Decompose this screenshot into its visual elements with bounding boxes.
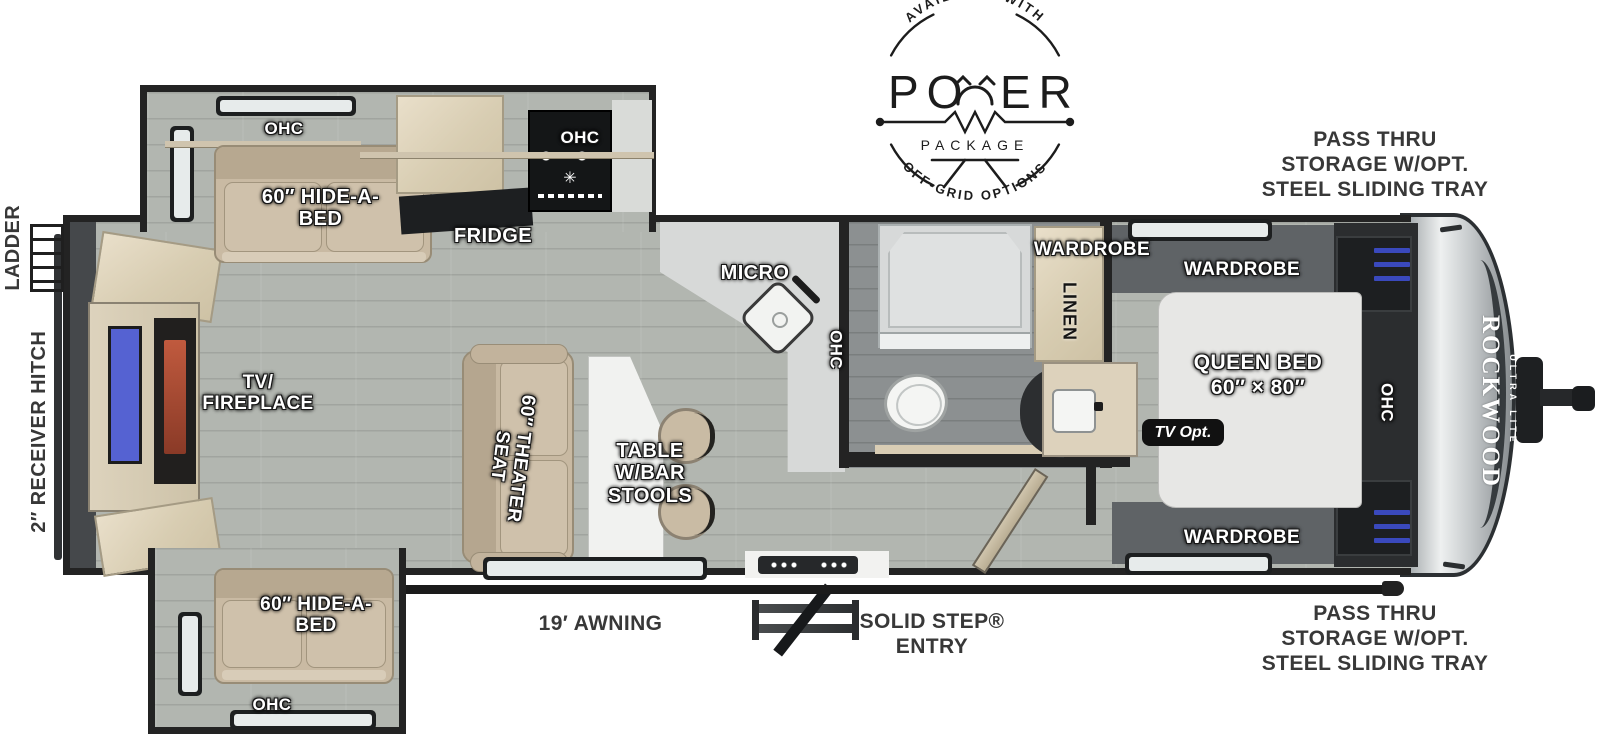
power-package-badge: AVAILABLE WITH OFF-GRID OPTIONS PO ER PA…: [860, 0, 1090, 200]
awning-cap-right: [1382, 581, 1404, 596]
label-ohc-stove: OHC: [549, 128, 611, 147]
label-ohc-bottom-slide: OHC: [240, 695, 304, 714]
badge-top-arc-label: AVAILABLE WITH: [902, 0, 1048, 25]
shower-pan: [888, 232, 1022, 328]
fireplace-glow: [164, 340, 186, 454]
badge-power-left: PO: [888, 66, 970, 118]
bedroom-wall-stub: [1086, 465, 1096, 525]
rv-floorplan-diagram: ✳ ROCKWOOD ULTRA LITE AVAILABLE WITH OFF…: [0, 0, 1600, 748]
label-tv-opt: TV Opt.: [1142, 419, 1224, 446]
label-wardrobe-bed-top: WARDROBE: [1168, 259, 1316, 280]
wardrobe-blue-stripe: [1374, 538, 1410, 543]
window-pane: [220, 100, 352, 112]
vanity-faucet: [1094, 402, 1103, 411]
label-wardrobe-bath: WARDROBE: [1019, 239, 1165, 260]
badge-bottom-arc-text: OFF-GRID OPTIONS: [900, 158, 1050, 200]
tv-screen: [108, 326, 142, 464]
label-queen-bed: QUEEN BED 60″ × 80″: [1165, 350, 1351, 400]
tv-opt-badge: TV Opt.: [1142, 419, 1224, 446]
wardrobe-blue-stripe: [1374, 248, 1410, 253]
vanity-sink: [1052, 389, 1096, 433]
label-fridge: FRIDGE: [433, 225, 553, 247]
bath-ledge: [875, 445, 1060, 454]
label-table-stools: TABLE W/BAR STOOLS: [586, 440, 714, 507]
sofa-front-lip: [222, 670, 386, 680]
badge-top-arc-text: AVAILABLE WITH: [902, 0, 1048, 25]
sofa-front-lip: [222, 252, 426, 262]
window: [1128, 219, 1272, 241]
hitch-arm: [1540, 389, 1576, 406]
window: [483, 557, 707, 580]
stove-burner-icon: ✳: [552, 168, 588, 190]
label-linen: LINEN: [1059, 267, 1080, 357]
ladder-icon: [30, 224, 64, 292]
window-pane: [234, 714, 372, 726]
shower-ledge: [880, 332, 1030, 349]
window-pane: [487, 561, 703, 576]
hitch-jack: [1516, 357, 1543, 443]
slide-window: [216, 96, 356, 116]
label-ohc-bed: OHC: [1377, 363, 1396, 443]
badge-package-label: PACKAGE: [921, 137, 1030, 153]
label-ohc-kitchen: OHC: [826, 310, 845, 390]
label-wardrobe-bed-bottom: WARDROBE: [1168, 527, 1316, 548]
badge-bottom-arc-label: OFF-GRID OPTIONS: [900, 158, 1050, 200]
fridge-cabinet: [396, 95, 504, 194]
wardrobe-blue-stripe: [1374, 510, 1410, 515]
slide-window-side: [178, 612, 202, 696]
awning-bar: [398, 585, 1390, 594]
label-ladder: LADDER: [2, 173, 26, 323]
brand-rockwood: ROCKWOOD: [1474, 315, 1504, 485]
label-pass-thru-bottom: PASS THRU STORAGE W/OPT. STEEL SLIDING T…: [1245, 602, 1505, 676]
entry-step-side: [752, 600, 759, 640]
badge-power-right: ER: [1000, 66, 1080, 118]
brand-ultra-lite: ULTRA LITE: [1504, 340, 1518, 460]
stove-grate: [538, 194, 602, 198]
label-solid-step: SOLID STEP® ENTRY: [852, 610, 1012, 660]
entry-threshold: [758, 556, 858, 574]
wardrobe-blue-stripe: [1374, 524, 1410, 529]
label-hide-a-bed-bottom: 60″ HIDE-A- BED: [246, 594, 386, 637]
wardrobe-blue-stripe: [1374, 262, 1410, 267]
wardrobe-blue-stripe: [1374, 276, 1410, 281]
label-hide-a-bed-top: 60″ HIDE-A- BED: [248, 186, 393, 231]
label-receiver-hitch: 2″ RECEIVER HITCH: [28, 312, 52, 552]
window-pane: [182, 616, 198, 692]
window-pane: [1129, 557, 1268, 571]
stove-shelf: [360, 152, 654, 159]
label-pass-thru-top: PASS THRU STORAGE W/OPT. STEEL SLIDING T…: [1245, 128, 1505, 202]
label-awning: 19′ AWNING: [518, 612, 683, 637]
label-tv-fireplace: TV/ FIREPLACE: [192, 372, 324, 415]
label-ohc-top-slide: OHC: [252, 119, 316, 138]
entry-step-rail: [773, 584, 833, 657]
label-micro: MICRO: [697, 262, 813, 284]
sink-drain: [772, 312, 788, 328]
theater-armrest-top: [470, 344, 568, 364]
window: [1125, 553, 1272, 575]
window-pane: [1132, 223, 1268, 237]
hitch-ball: [1572, 386, 1595, 411]
